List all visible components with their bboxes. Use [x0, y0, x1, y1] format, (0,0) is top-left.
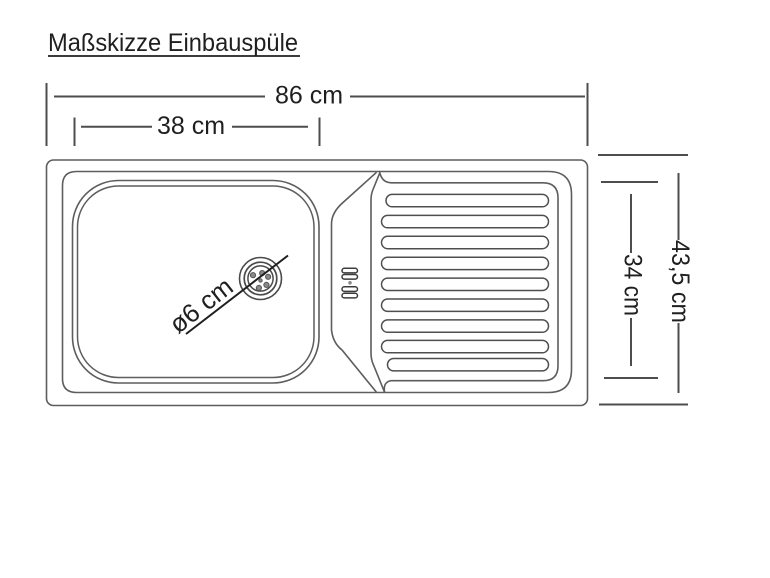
svg-text:43,5 cm: 43,5 cm — [666, 240, 694, 323]
svg-text:38 cm: 38 cm — [157, 112, 225, 140]
svg-text:86 cm: 86 cm — [275, 82, 343, 110]
svg-text:34 cm: 34 cm — [618, 254, 646, 316]
svg-text:Maßskizze Einbauspüle: Maßskizze Einbauspüle — [48, 29, 298, 57]
